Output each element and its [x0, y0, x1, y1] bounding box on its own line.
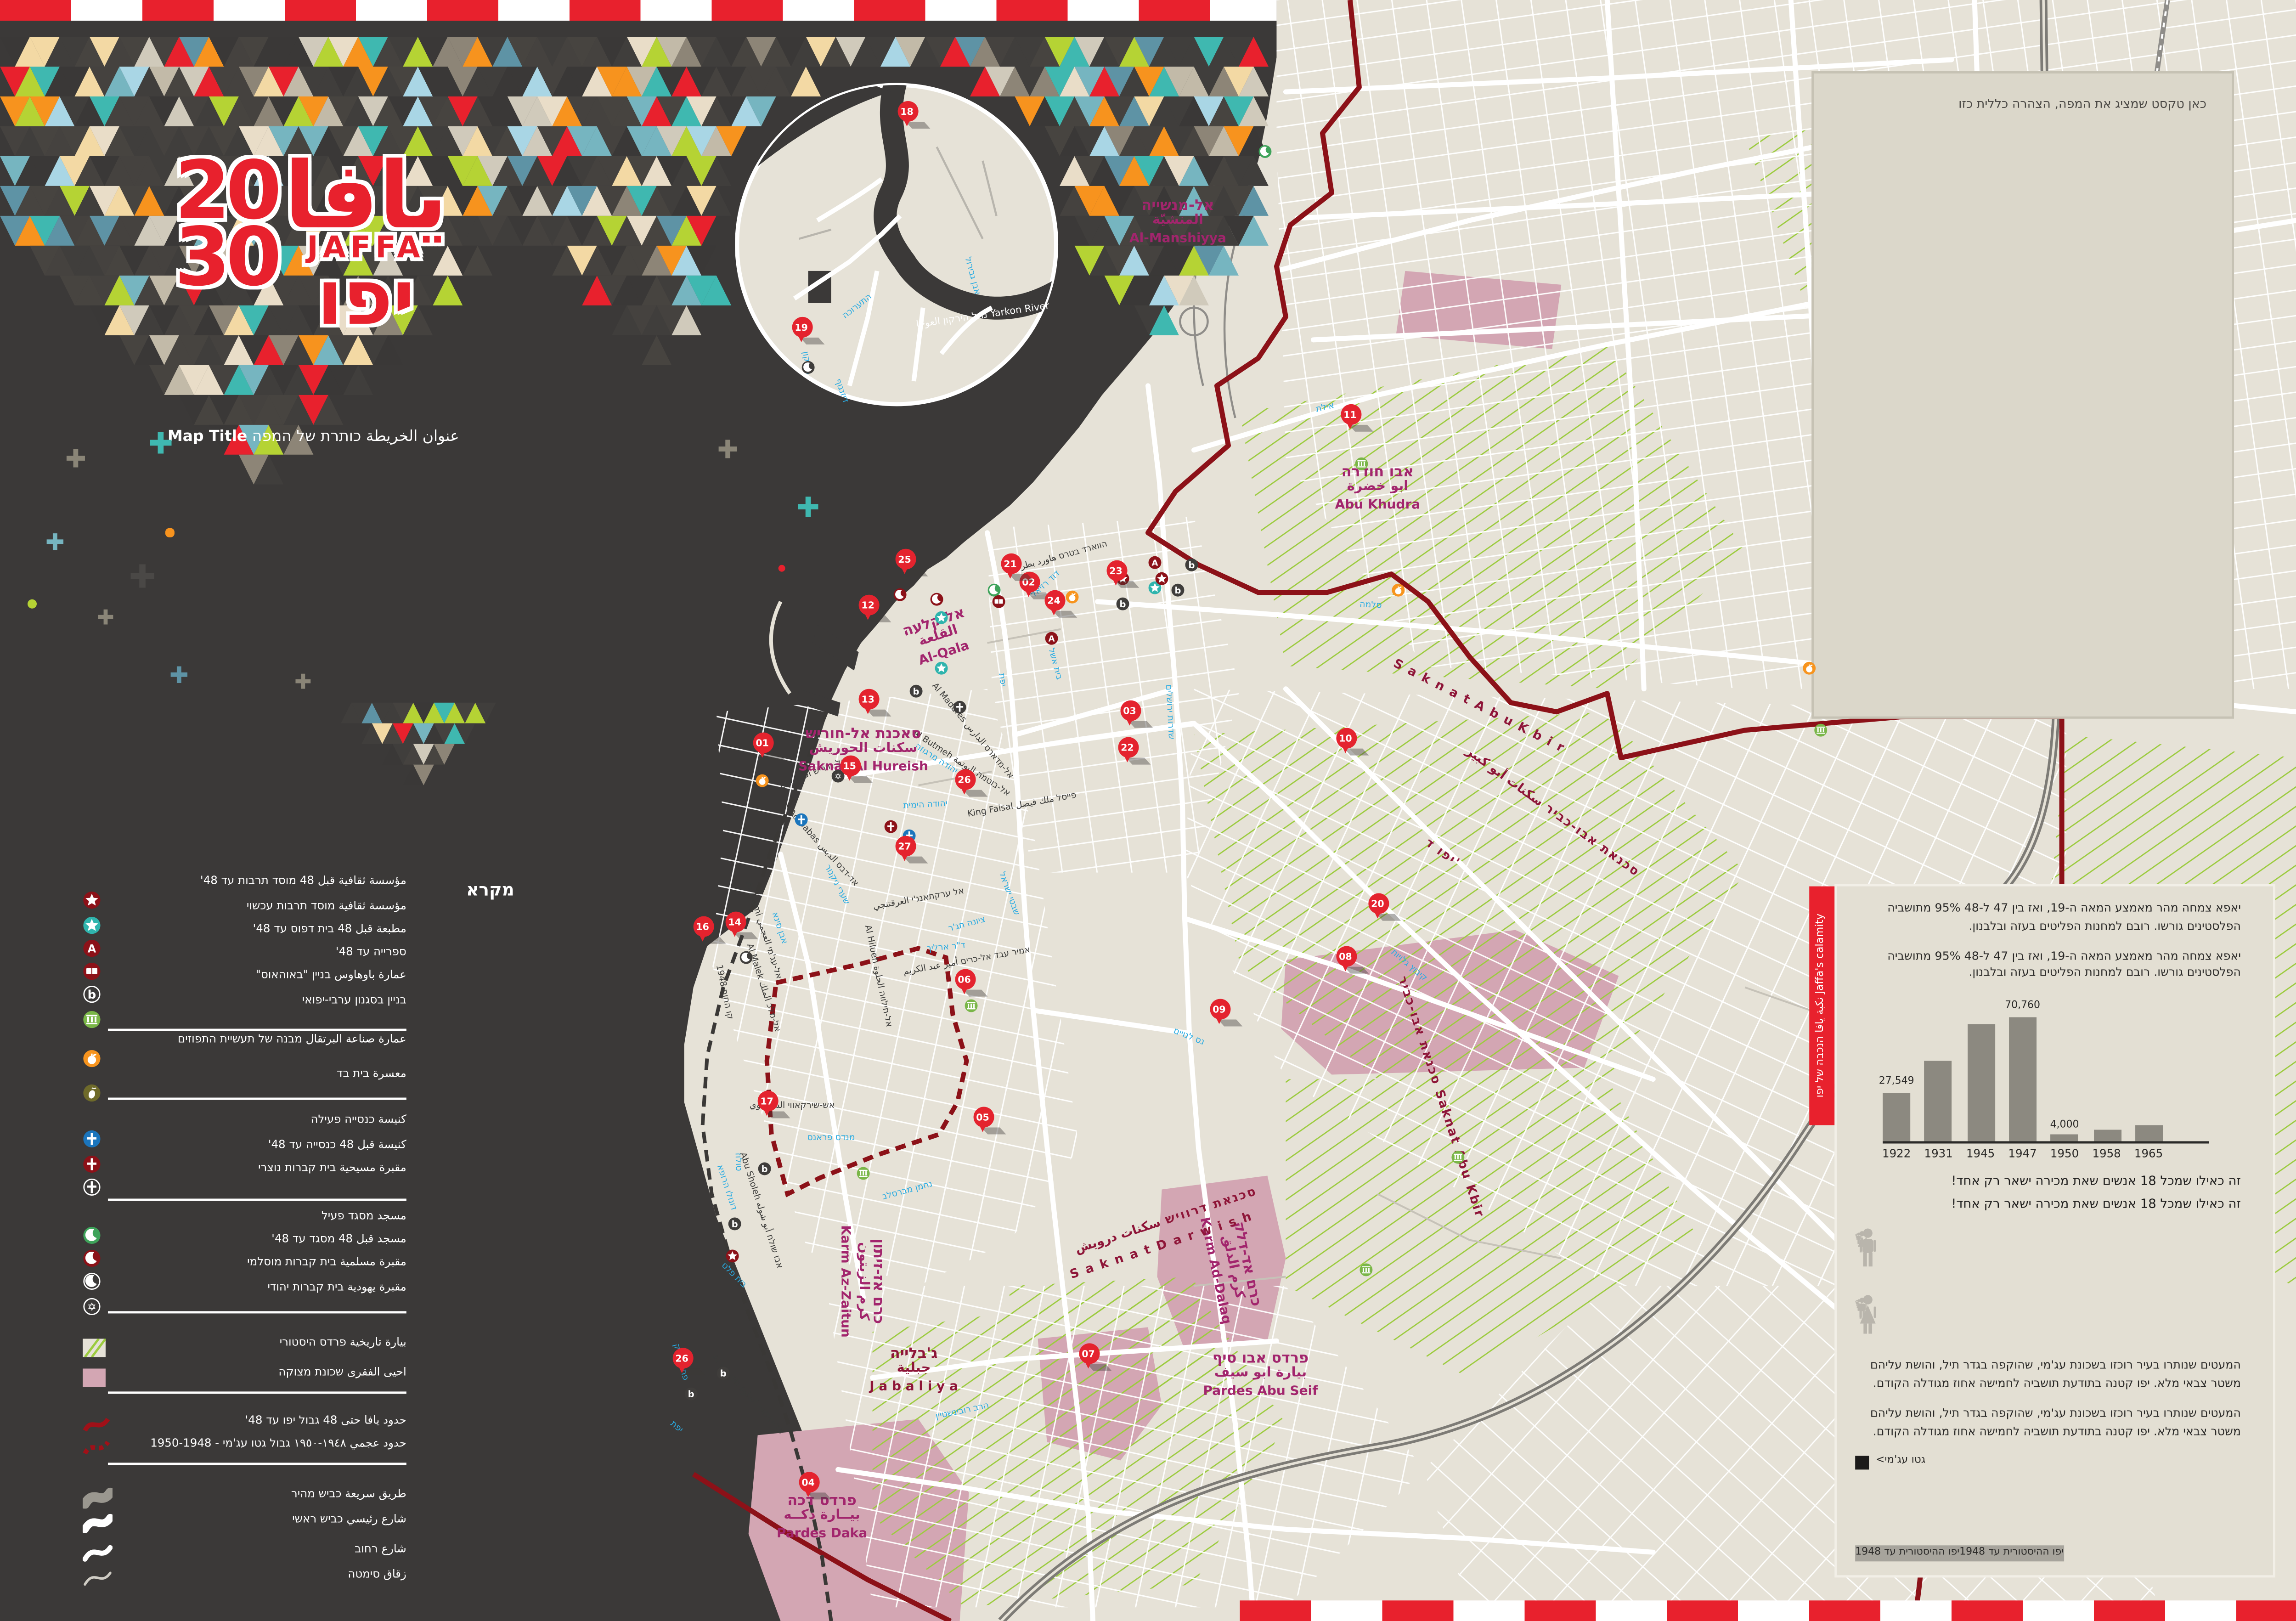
columns-poi-icon	[965, 999, 978, 1013]
person-m-icon	[1855, 1222, 1880, 1284]
chart-bar-1965: 1965	[2135, 1125, 2162, 1142]
chart-axis-label: 1922	[1882, 1149, 1911, 1163]
map-pin-11: 11	[1340, 404, 1360, 432]
street-label: סלמה	[1360, 598, 1382, 610]
map-pin-10: 10	[1335, 728, 1356, 756]
plus-ornament-icon: ✚	[294, 673, 312, 696]
person-f-icon	[1855, 1289, 1880, 1351]
street-label: ציונה תג'ר	[947, 913, 987, 934]
star-poi-icon	[935, 611, 948, 625]
letterB-poi-icon: b	[1116, 597, 1130, 611]
letterA-poi-icon: A	[1045, 632, 1059, 645]
orange-poi-icon	[1066, 590, 1079, 604]
street-label: יפת	[997, 672, 1010, 687]
chart-bar-1947: 70,7601947	[2009, 1016, 2037, 1142]
svg-text:b: b	[732, 1219, 738, 1230]
street-label: אבן גבירול	[963, 255, 984, 296]
letterB-poi-icon: b	[909, 684, 923, 698]
ghetto-label: גטו עג'מי>	[1876, 1456, 1925, 1467]
crescent-poi-icon	[801, 361, 815, 374]
map-pin-25: 25	[894, 548, 915, 577]
plus-ornament-icon: ✚	[169, 665, 189, 690]
district-label: פרדס אבו סיףبيارة ابو سيفPardes Abu Seif	[1203, 1349, 1318, 1402]
panel-paragraph: המעטים שנותרו בעיר רוכזו בשכונת עג'מי, ש…	[1855, 1360, 2241, 1396]
chart-value-label: 27,549	[1879, 1078, 1914, 1090]
chart-axis-label: 1965	[2134, 1149, 2163, 1163]
columns-poi-icon	[1354, 457, 1368, 471]
street-label: דיזנגוף	[833, 377, 852, 404]
street-label: יהודה הימית	[903, 797, 948, 811]
columns-poi-icon	[1814, 723, 1828, 737]
chart-axis-label: 1947	[2008, 1149, 2037, 1163]
street-label: נחמן מברסלב	[880, 1177, 933, 1202]
map-pin-22: 22	[1117, 737, 1138, 765]
chart-axis-label: 1945	[1966, 1149, 1995, 1163]
cross-poi-icon	[953, 700, 967, 714]
chart-bar-1922: 27,5491922	[1883, 1093, 1910, 1141]
district-label: כרם אז-זיתוןكرم الزيتونKarm Az-Zaitun	[835, 1225, 888, 1338]
map-pin-21: 21	[1000, 553, 1021, 582]
street-label: קיבוץ גלויות	[1389, 946, 1430, 983]
orange-poi-icon	[1391, 583, 1405, 597]
street-label: אילת	[1314, 399, 1335, 414]
letterB-poi-icon: b	[716, 1366, 730, 1380]
orange-poi-icon	[756, 774, 769, 788]
street-label: יפת	[669, 1418, 686, 1435]
chart-axis-label: 1958	[2092, 1149, 2121, 1163]
dot-ornament	[27, 599, 37, 609]
map-pin-20: 20	[1367, 893, 1388, 921]
map-pin-26: 26	[671, 1347, 692, 1376]
columns-poi-icon	[1451, 1150, 1465, 1164]
map-pin-24: 24	[1044, 590, 1064, 618]
chart-bar-1931: 1931	[1925, 1062, 1952, 1142]
svg-text:b: b	[720, 1368, 727, 1379]
chart-value-label: 4,000	[2050, 1120, 2079, 1131]
map-pin-08: 08	[1335, 946, 1356, 974]
boundary-label: סכנאת אבו-כביר سكنات أبو كبير	[1463, 745, 1642, 881]
boundary-label: יפו ד'	[1422, 837, 1462, 871]
crescent-poi-icon	[893, 588, 907, 602]
chart-bar-1958: 1958	[2093, 1130, 2121, 1142]
map-pin-16: 16	[692, 916, 713, 944]
street-label: בית אשל	[1046, 646, 1066, 681]
map-pin-05: 05	[972, 1107, 993, 1135]
map-pin-09: 09	[1209, 999, 1230, 1027]
candy-stripe-top	[0, 0, 1276, 21]
map-pin-13: 13	[857, 689, 878, 717]
street-label: הרב רובינשטיין	[934, 1399, 990, 1421]
crescent-poi-icon	[930, 593, 944, 606]
letterB-poi-icon: b	[758, 1162, 772, 1175]
svg-text:b: b	[762, 1164, 768, 1175]
plus-ornament-icon: ✚	[97, 609, 114, 632]
pictogram-row	[1855, 1222, 2241, 1284]
chart-axis-label: 1931	[1924, 1149, 1953, 1163]
chart-value-label: 70,760	[2005, 1001, 2040, 1013]
crescent-poi-icon	[739, 951, 753, 965]
candy-stripe-bottom	[1240, 1600, 2296, 1621]
map-pin-23: 23	[1106, 560, 1126, 588]
svg-text:A: A	[1049, 634, 1055, 644]
plus-ornament-icon: ✚	[45, 531, 65, 557]
street-label: קו החוף 1948	[714, 964, 737, 1021]
boundary-label: S a k n a t A b u K b i r	[1390, 658, 1567, 757]
street-label: מנדס פראנס	[807, 1131, 855, 1142]
panel-footer: גטו עג'מי> יפו ההיסטורית עד 1948 יפו ההי…	[1855, 1455, 2241, 1469]
street-label: שבטי ישראל	[997, 870, 1023, 917]
street-label: בית פלט	[720, 1259, 750, 1289]
dot-ornament	[777, 564, 784, 570]
dot-ornament	[166, 529, 174, 537]
street-label: שדרות ירושלים	[1164, 684, 1178, 740]
svg-text:b: b	[1189, 560, 1195, 570]
poster: 20 30 يافا JAFFA יפו عنوان الخريطة כותרת…	[0, 0, 2296, 1621]
letterB-poi-icon: b	[1171, 583, 1185, 597]
svg-text:b: b	[1120, 599, 1126, 610]
nakba-panel: نكبة يافا הנכבה של יפו Jaffa's calamity …	[1834, 884, 2275, 1578]
pictogram-row	[1855, 1289, 2241, 1351]
street-label: נס לגויים	[1172, 1024, 1207, 1047]
letterB-poi-icon: b	[684, 1387, 698, 1401]
chart-bar-1945: 1945	[1967, 1025, 1994, 1142]
svg-text:b: b	[1175, 585, 1181, 596]
district-label: אל-מנשייהالمنشيّةAl-Manshiyya	[1129, 196, 1226, 249]
columns-poi-icon	[1359, 1263, 1373, 1276]
svg-text:b: b	[913, 686, 920, 697]
letterA-poi-icon: A	[1148, 556, 1162, 570]
panel-caption: זה כאילו שמכל 18 אנשים שאת מכירה ישאר רק…	[1855, 1176, 2241, 1190]
map-pin-18: 18	[897, 101, 917, 129]
ghetto-swatch	[1855, 1455, 1869, 1469]
columns-poi-icon	[857, 1166, 870, 1180]
map-pin-03: 03	[1119, 700, 1140, 729]
chart-axis-label: 1950	[2050, 1149, 2079, 1163]
book-poi-icon	[992, 595, 1006, 609]
svg-text:b: b	[688, 1389, 694, 1400]
district-label: ג'בלייהجبليةJ a b a l i y a	[869, 1344, 958, 1398]
district-label: אבו חודרהابو خضرةAbu Khudra	[1335, 463, 1421, 516]
people-pictogram	[1855, 1222, 2241, 1351]
street-label: ד"ר ארליך	[926, 938, 965, 953]
historic-jaffa-bar: יפו ההיסטורית עד 1948 יפו ההיסטורית עד 1…	[1855, 1545, 2064, 1561]
panel-paragraph: יאפא צמחה מהר מאמצע המאה ה-19, ואז בין 4…	[1855, 950, 2241, 986]
svg-text:A: A	[1152, 558, 1158, 568]
panel-caption: זה כאילו שמכל 18 אנשים שאת מכירה ישאר רק…	[1855, 1199, 2241, 1213]
map-pin-04: 04	[798, 1471, 818, 1500]
plus-ornament-icon: ✚	[65, 444, 86, 474]
panel-paragraph: יאפא צמחה מהר מאמצע המאה ה-19, ואז בין 4…	[1855, 903, 2241, 938]
map-pin-14: 14	[724, 911, 745, 940]
map-pin-12: 12	[857, 594, 878, 623]
map-pin-01: 01	[752, 732, 773, 761]
chart-bar-1950: 4,0001950	[2051, 1135, 2078, 1141]
panel-tab: نكبة يافا הנכבה של יפו Jaffa's calamity	[1809, 887, 1834, 1125]
star-poi-icon	[935, 661, 948, 675]
map-pin-06: 06	[954, 969, 975, 997]
boundary-label: סכנאת אבו-כביר Saknat Abu Kbir	[1394, 975, 1485, 1220]
plus-ornament-icon: ✚	[148, 428, 174, 463]
panel-paragraph: המעטים שנותרו בעיר רוכזו בשכונת עג'מי, ש…	[1855, 1407, 2241, 1443]
cross-poi-icon	[884, 820, 898, 834]
map-pin-17: 17	[756, 1090, 777, 1119]
plus-ornament-icon: ✚	[717, 435, 739, 465]
street-label: נחל הירקון العوجا Yarkon River	[915, 299, 1050, 329]
plus-ornament-icon: ✚	[796, 491, 819, 524]
crescent-poi-icon	[1258, 145, 1272, 158]
star-poi-icon	[1155, 572, 1168, 586]
street-label: אל ערקתאנג'י العرقتنجي	[872, 884, 965, 912]
street-label: הווארד בטרס هاورد بطرس	[1009, 537, 1108, 574]
street-label: Al Hilueh אל-חילווה الحلوة	[863, 924, 896, 1028]
population-bar-chart: 27,54919221931194570,76019474,0001950195…	[1860, 997, 2236, 1172]
letterB-poi-icon: b	[1185, 558, 1198, 572]
street-label: Al Hilueh אל-חילווה الحلوة	[709, 1351, 787, 1436]
map-pin-27: 27	[894, 836, 915, 864]
cross-poi-icon	[795, 813, 808, 827]
star-poi-icon	[726, 1249, 739, 1263]
district-label: סאכנת אל-חורישسكنات الحوريشSaknat Al Hur…	[798, 724, 928, 778]
map-pin-15: 15	[839, 755, 860, 784]
plus-ornament-icon: ✚	[129, 560, 156, 597]
orange-poi-icon	[1802, 661, 1816, 675]
map-pin-19: 19	[791, 316, 812, 345]
map-pin-07: 07	[1078, 1343, 1099, 1371]
letterB-poi-icon: b	[728, 1217, 742, 1231]
street-label: התערוכה	[839, 290, 874, 321]
map-pin-26: 26	[954, 769, 975, 797]
